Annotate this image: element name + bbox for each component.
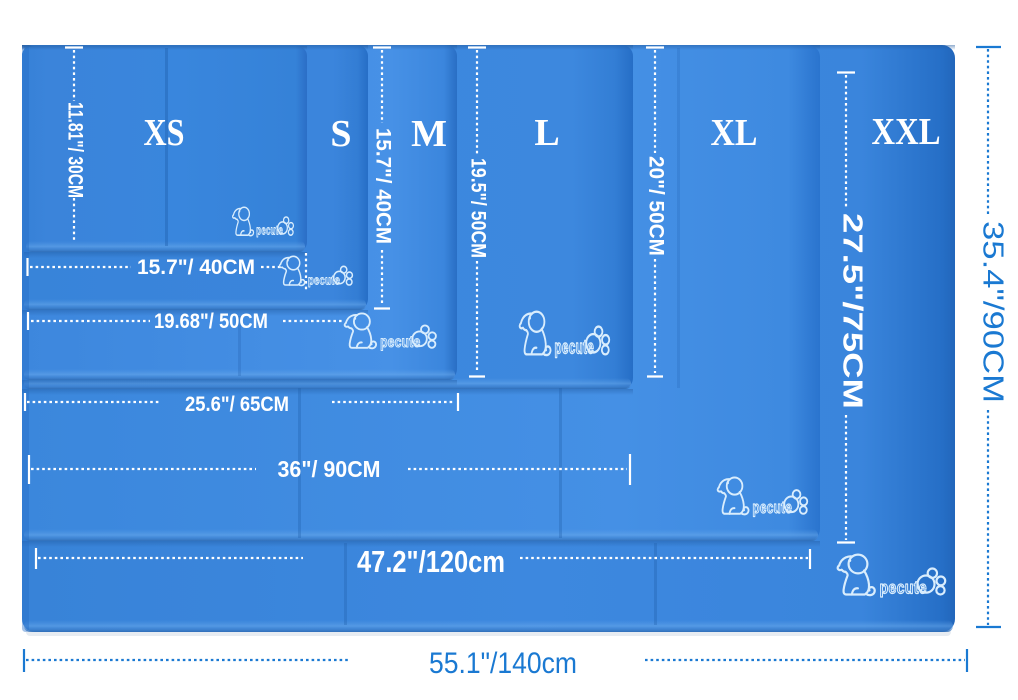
svg-text:19.5"/ 50CM: 19.5"/ 50CM	[466, 158, 489, 258]
svg-text:11.81"/ 30CM: 11.81"/ 30CM	[63, 102, 86, 198]
svg-text:XL: XL	[711, 112, 758, 154]
svg-text:M: M	[411, 113, 447, 155]
svg-text:55.1"/140cm: 55.1"/140cm	[429, 647, 577, 680]
svg-text:15.7"/ 40CM: 15.7"/ 40CM	[371, 128, 394, 244]
svg-text:XS: XS	[144, 112, 185, 154]
svg-text:15.7"/ 40CM: 15.7"/ 40CM	[137, 256, 255, 279]
svg-text:25.6"/ 65CM: 25.6"/ 65CM	[185, 393, 289, 416]
svg-text:35.4"/90CM: 35.4"/90CM	[976, 221, 1008, 403]
svg-text:S: S	[330, 113, 351, 155]
svg-text:27.5"/75CM: 27.5"/75CM	[838, 213, 869, 409]
svg-text:L: L	[534, 112, 559, 154]
svg-text:19.68"/ 50CM: 19.68"/ 50CM	[154, 310, 268, 333]
svg-text:XXL: XXL	[872, 111, 941, 153]
svg-text:20"/ 50CM: 20"/ 50CM	[644, 156, 667, 256]
svg-text:47.2"/120cm: 47.2"/120cm	[357, 544, 505, 579]
svg-text:36"/ 90CM: 36"/ 90CM	[278, 456, 381, 482]
